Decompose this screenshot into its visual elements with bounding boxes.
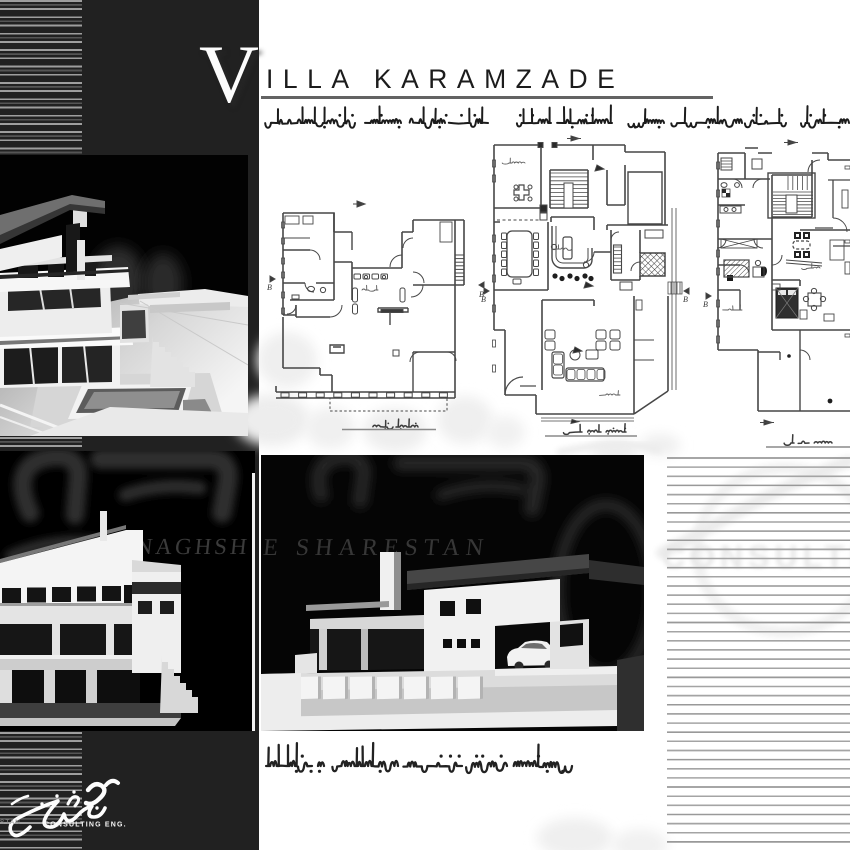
- svg-text:STAN: STAN: [0, 819, 21, 826]
- svg-text:B: B: [703, 300, 708, 309]
- svg-text:B: B: [267, 283, 272, 292]
- svg-text:E SHARESTAN: E SHARESTAN: [262, 535, 491, 561]
- svg-text:ILLA KARAMZADE: ILLA KARAMZADE: [266, 64, 624, 94]
- svg-text:B: B: [683, 295, 688, 304]
- svg-text:NAGHSH: NAGHSH: [135, 533, 251, 559]
- svg-text:CONSULTING ENG.: CONSULTING ENG.: [44, 822, 127, 829]
- svg-text:B: B: [481, 295, 486, 304]
